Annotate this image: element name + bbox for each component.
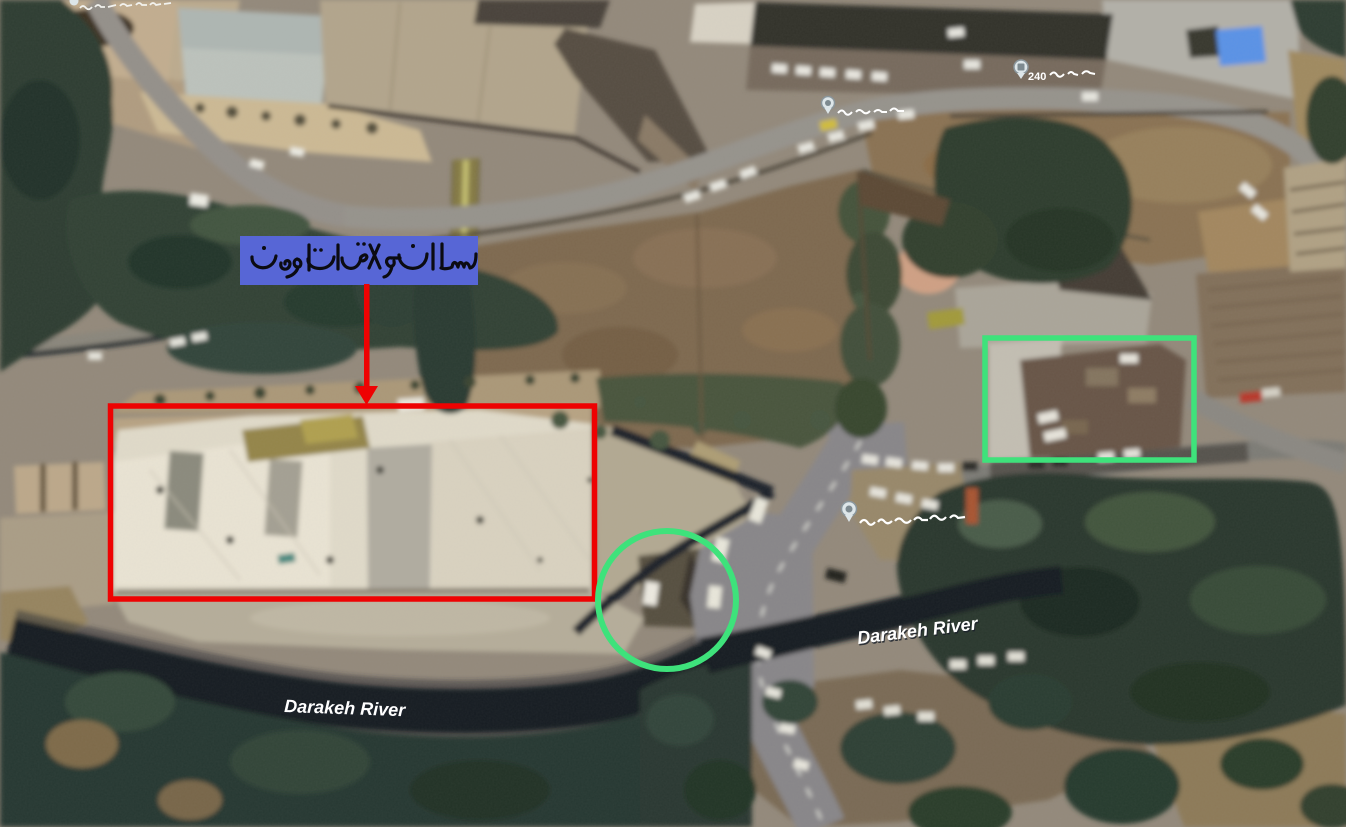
svg-text:240: 240	[1028, 71, 1046, 83]
svg-text:Darakeh River: Darakeh River	[284, 696, 407, 720]
